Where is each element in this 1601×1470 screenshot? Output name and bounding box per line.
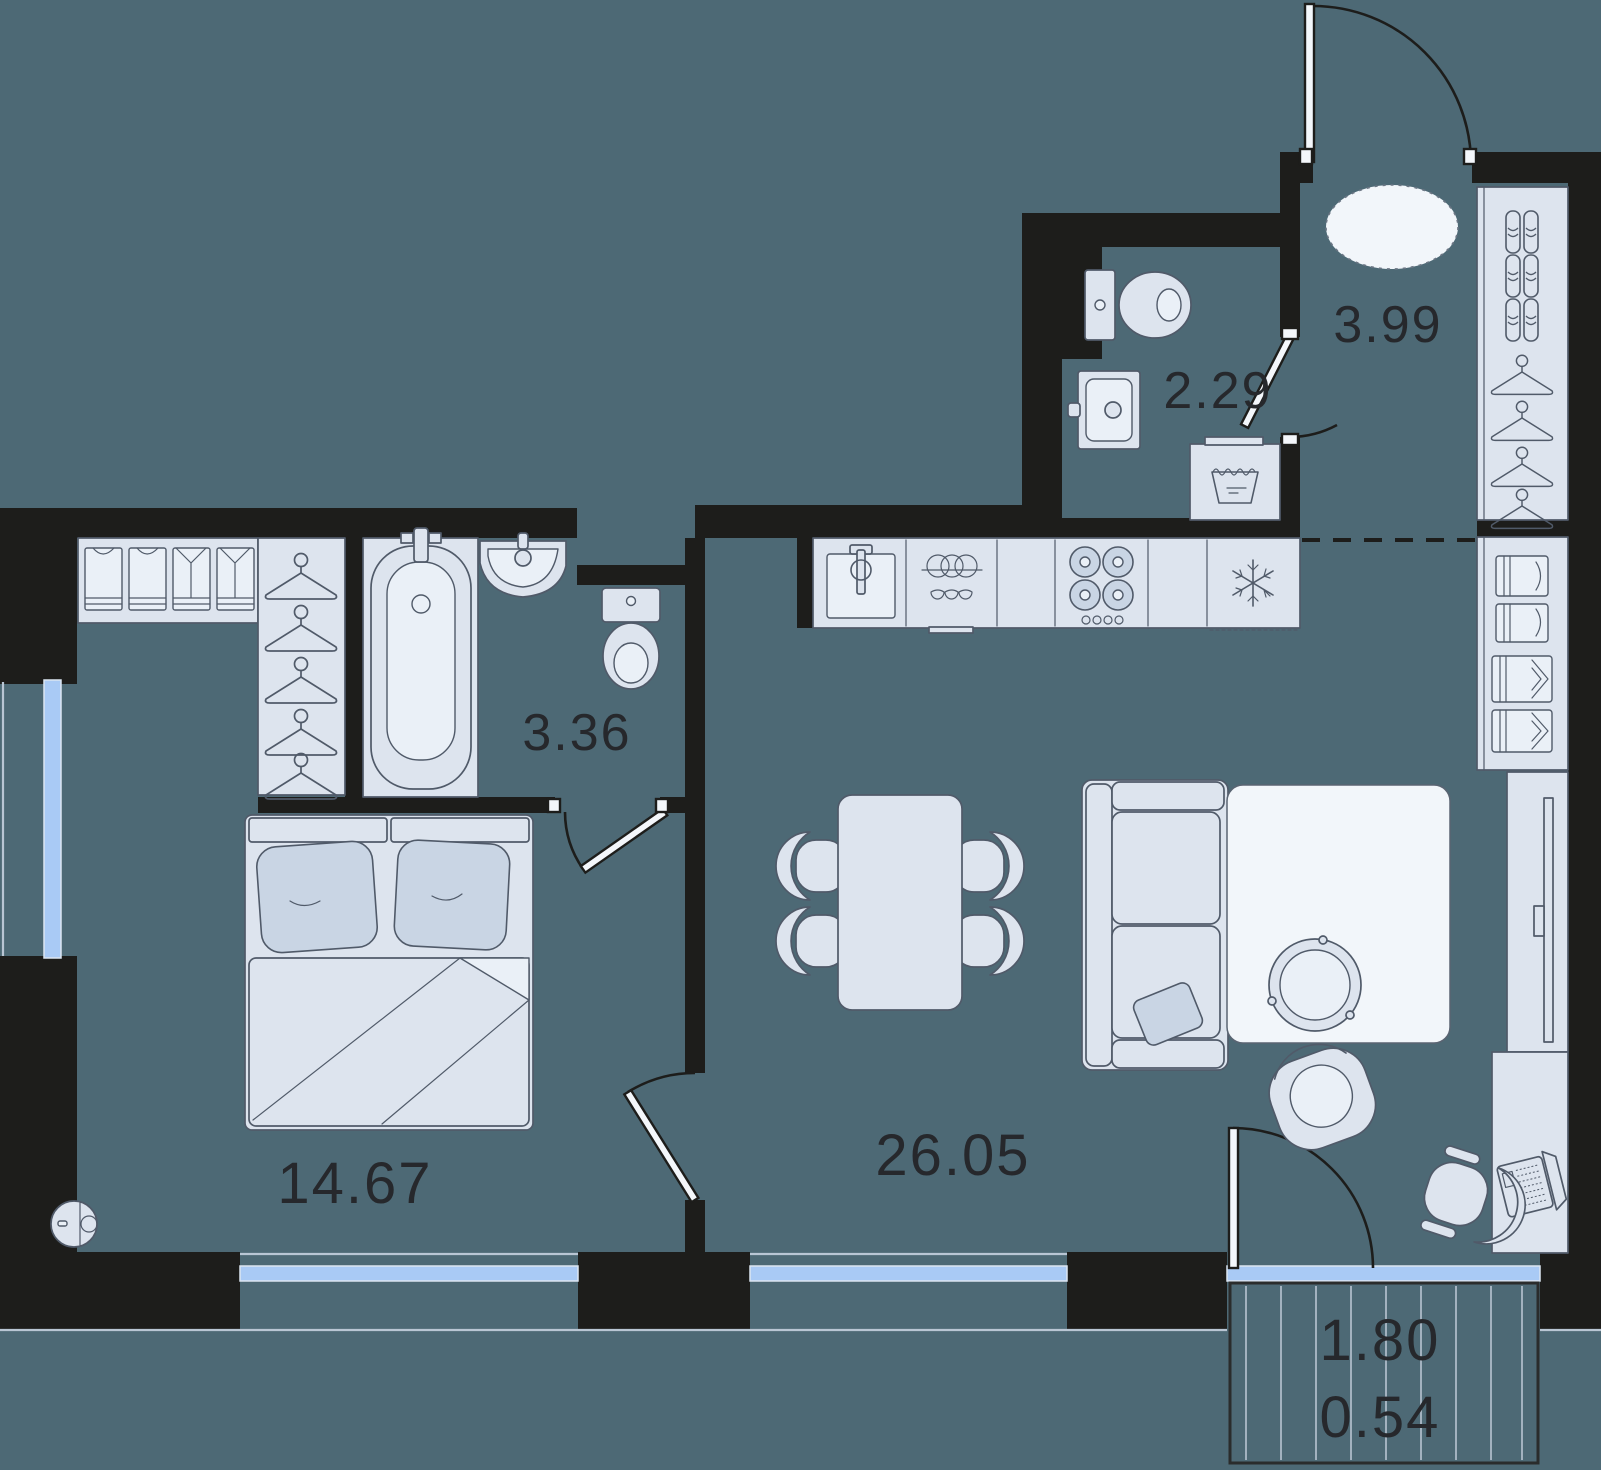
wall-segment: [1568, 152, 1601, 1252]
room-area-label: 0.54: [1320, 1385, 1441, 1450]
desk: [1492, 1052, 1568, 1253]
bathtub-icon: [363, 528, 478, 797]
wall-segment: [1067, 1252, 1227, 1329]
chair-icon: [776, 832, 846, 900]
balcony-door: [1229, 1128, 1373, 1268]
wall-segment: [797, 538, 813, 628]
wall-segment: [695, 505, 1022, 538]
room-area-label: 3.99: [1333, 296, 1442, 354]
window-bedroom-bottom: [240, 1266, 578, 1281]
window-living-bottom: [750, 1266, 1067, 1281]
door-jamb: [1282, 434, 1298, 445]
bed-blanket: [249, 958, 529, 1126]
armchair-icon: [1257, 1030, 1386, 1159]
bed-pillow: [255, 840, 378, 954]
entrance-door: [1300, 4, 1476, 164]
door-swing-arc: [565, 812, 583, 869]
chair-icon: [776, 907, 846, 975]
room-area-label: 2.29: [1163, 362, 1272, 420]
floor-plan-screenshot: 14.67 26.05 3.36 2.29 3.99 1.80 0.54: [0, 0, 1601, 1470]
hallway-closet: [1477, 187, 1568, 528]
dining-table-icon: [838, 795, 962, 1010]
door-swing-arc: [628, 1073, 695, 1092]
wall-segment: [1540, 1252, 1601, 1329]
bathroom-door: [548, 799, 668, 873]
wc-toilet-icon: [1085, 270, 1191, 340]
door-jamb: [1300, 149, 1312, 164]
door-leaf: [581, 809, 668, 873]
door-jamb: [1282, 328, 1298, 339]
chair-icon: [954, 832, 1024, 900]
wc-sink-icon: [1068, 371, 1140, 449]
door-leaf: [624, 1090, 698, 1202]
tv-unit: [1507, 772, 1568, 1052]
door-leaf: [1229, 1128, 1238, 1268]
wall-segment: [1472, 152, 1601, 183]
wall-segment: [345, 533, 363, 799]
room-area-label: 1.80: [1320, 1308, 1441, 1373]
wall-segment: [0, 508, 577, 538]
kitchen-sink-icon: [827, 545, 895, 618]
floor-plan-svg: 14.67 26.05 3.36 2.29 3.99 1.80 0.54: [0, 0, 1601, 1470]
bedroom-door: [624, 1073, 698, 1202]
living-closet: [1477, 537, 1568, 770]
wall-segment: [0, 1252, 240, 1329]
bed-pillow: [393, 839, 510, 951]
dining-set: [776, 795, 1024, 1010]
wall-segment: [1280, 183, 1300, 337]
wall-segment: [1280, 437, 1300, 520]
chair-icon: [954, 907, 1024, 975]
wall-segment: [1022, 213, 1062, 538]
bath-toilet-icon: [602, 588, 660, 689]
wardrobe-hanger-strip: [258, 538, 345, 799]
door-swing-arc: [1313, 6, 1471, 164]
washing-machine-icon: [1190, 437, 1280, 520]
room-area-label: 3.36: [522, 704, 631, 762]
door-jamb: [548, 799, 560, 812]
robot-vacuum-icon: [51, 1201, 97, 1247]
wall-segment: [685, 1200, 705, 1253]
door-jamb: [656, 799, 668, 812]
kitchen-counter: [813, 538, 1300, 633]
room-area-label: 26.05: [875, 1123, 1030, 1188]
door-jamb: [1464, 149, 1476, 164]
wall-segment: [0, 508, 77, 684]
sofa-icon: [1082, 780, 1228, 1070]
wardrobe-shelf: [78, 538, 258, 623]
hallway: [1326, 185, 1568, 528]
closet-body: [1477, 187, 1568, 520]
room-area-label: 14.67: [277, 1151, 432, 1216]
bath-sink-icon: [480, 533, 566, 597]
window-balcony: [1227, 1266, 1540, 1281]
bed-icon: [245, 815, 533, 1130]
entry-rug-icon: [1326, 185, 1458, 269]
door-leaf: [1305, 4, 1314, 162]
tv-icon: [1544, 798, 1553, 1042]
wall-segment: [578, 1252, 750, 1329]
window-bedroom-left: [44, 680, 61, 958]
wall-segment: [1062, 518, 1300, 538]
